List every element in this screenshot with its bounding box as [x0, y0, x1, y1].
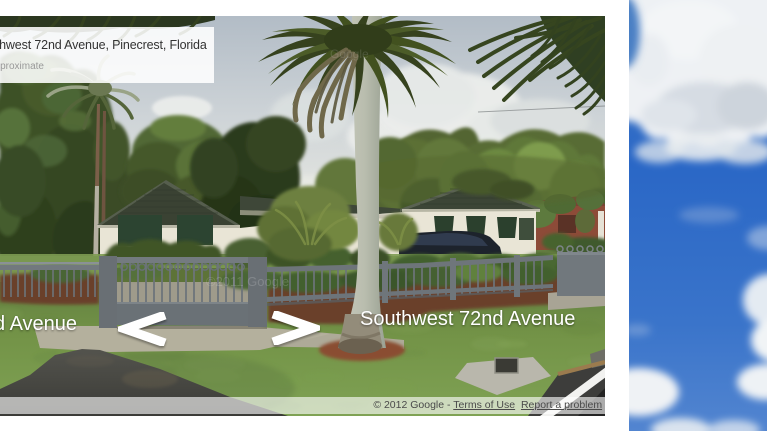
svg-text:Google: Google	[330, 47, 369, 61]
svg-text:©2011 Google: ©2011 Google	[206, 274, 289, 289]
